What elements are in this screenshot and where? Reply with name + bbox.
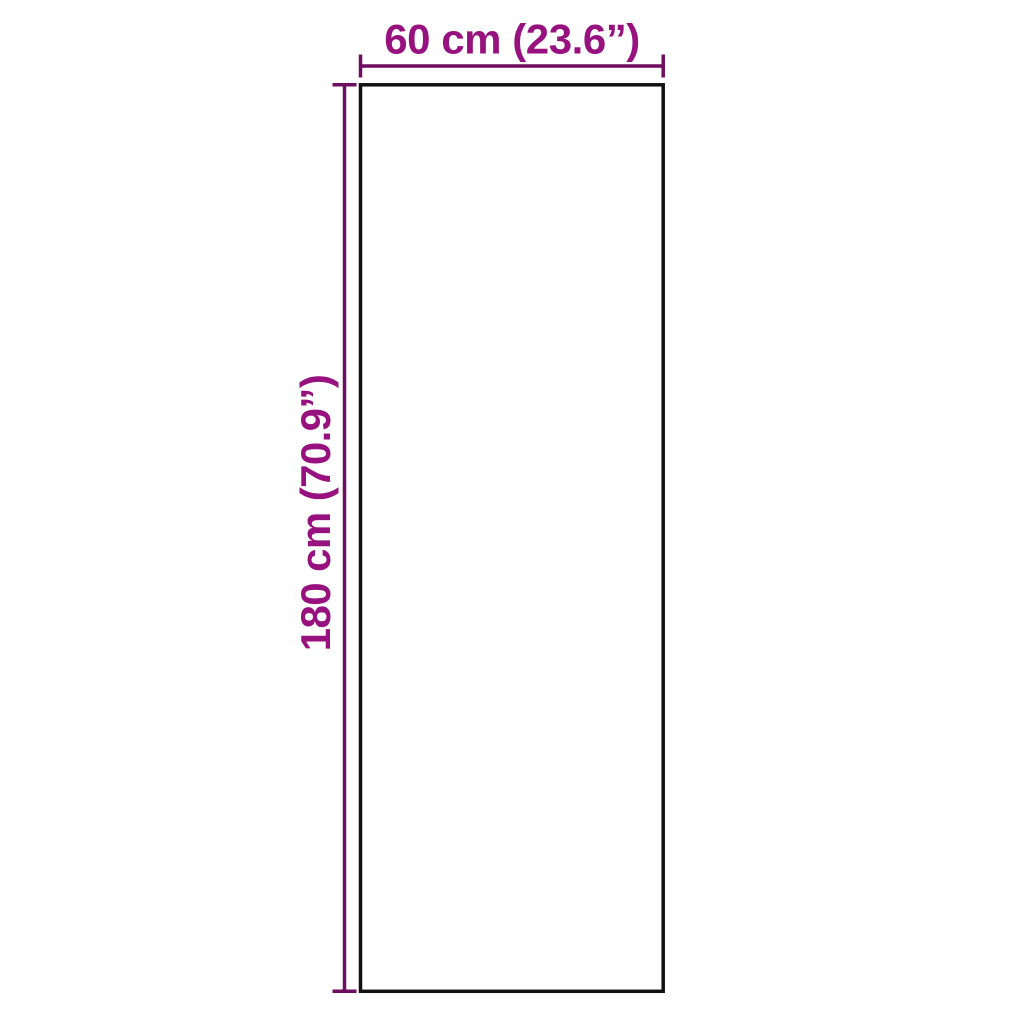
svg-text:180 cm (70.9”): 180 cm (70.9”) — [292, 375, 339, 651]
svg-text:60 cm (23.6”): 60 cm (23.6”) — [384, 16, 640, 63]
